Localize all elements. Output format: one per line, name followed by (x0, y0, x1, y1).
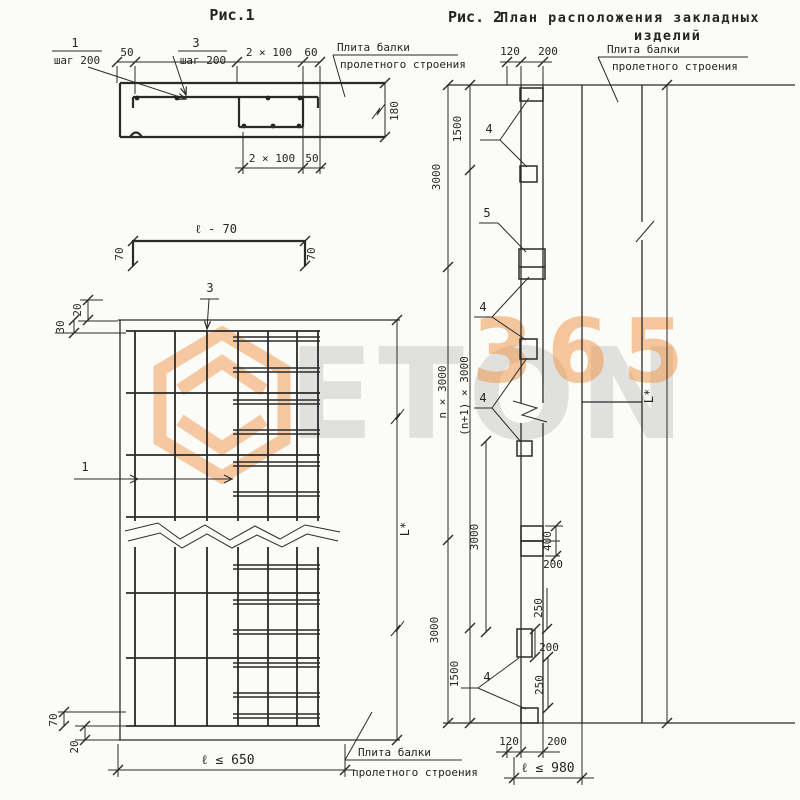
plan-dim-L: L* (398, 522, 412, 536)
fig2-dim-200-right: 200 (539, 641, 559, 654)
fig2-subtitle-1: План расположения закладных (500, 10, 760, 26)
pos3-step: шаг 200 (180, 54, 226, 67)
pos1-step: шаг 200 (54, 54, 100, 67)
plan-plate-label-1: Плита балки (358, 746, 431, 759)
fig2-dim-3000-bottom: 3000 (428, 617, 441, 644)
fig2-dim-250-a: 250 (532, 598, 545, 618)
channel-70-left: 70 (113, 247, 126, 260)
fig2-dim-1500-top: 1500 (451, 116, 464, 143)
break-line (125, 523, 340, 540)
fig2-dim-1500-bottom: 1500 (448, 661, 461, 688)
dim-2x100-top: 2 × 100 (246, 46, 292, 59)
fig2-plan: Рис. 2 План расположения закладных издел… (428, 8, 795, 785)
fig2-dim-L: L* (642, 389, 656, 403)
fig2-dim-n1-3000: (n+1) × 3000 (458, 356, 471, 435)
fig2-dim-400: 400 (541, 531, 554, 551)
plan-dim-20-bottom: 20 (68, 740, 81, 753)
channel-70-right: 70 (305, 247, 318, 260)
fig1-channel-detail: ℓ - 70 70 70 (113, 222, 318, 271)
plan-dim-30: 30 (54, 320, 67, 333)
plan-length-dim: ℓ ≤ 650 (201, 753, 254, 768)
fig1-plan: 20 30 3 1 L* 70 20 ℓ ≤ 650 Плита балки п… (47, 281, 478, 779)
drawing-sheet: Рис.1 50 2 × 100 60 2 × 100 50 1 шаг 200… (0, 0, 800, 800)
dim-50-top: 50 (120, 46, 133, 59)
fig2-dim-250-b: 250 (533, 675, 546, 695)
fig2-dim-120-top: 120 (500, 45, 520, 58)
fig2-plate-label-1: Плита балки (607, 43, 680, 56)
break-line (128, 533, 338, 548)
fig2-pos4-d: 4 (483, 670, 490, 684)
fig2-dim-120-bottom: 120 (499, 735, 519, 748)
fig2-pos4-a: 4 (485, 122, 492, 136)
fig2-pos4-b: 4 (479, 300, 486, 314)
fig1-title: Рис.1 (209, 6, 254, 24)
section-plate-label-2: пролетного строения (340, 58, 466, 71)
pos3-label: 3 (192, 36, 199, 50)
fig2-dim-n3000: n × 3000 (436, 366, 449, 419)
plan-pos3-label: 3 (206, 281, 213, 295)
fig2-pos4-c: 4 (479, 391, 486, 405)
channel-length-dim: ℓ - 70 (195, 222, 237, 236)
dim-180: 180 (388, 101, 401, 121)
fig2-plate-label-2: пролетного строения (612, 60, 738, 73)
fig2-dim-3000-top: 3000 (430, 164, 443, 191)
plan-pos1-label: 1 (81, 460, 88, 474)
plan-dim-70: 70 (47, 713, 60, 726)
pos1-label: 1 (71, 36, 78, 50)
dim-60: 60 (304, 46, 317, 59)
fig2-length-dim: ℓ ≤ 980 (521, 761, 574, 776)
section-plate-label-1: Плита балки (337, 41, 410, 54)
fig2-dim-200-top: 200 (538, 45, 558, 58)
fig2-subtitle-2: изделий (634, 28, 701, 44)
fig2-dim-200-mid: 200 (543, 558, 563, 571)
plan-plate-label-2: пролетного строения (352, 766, 478, 779)
dim-50-bottom: 50 (305, 152, 318, 165)
fig1-section: Рис.1 50 2 × 100 60 2 × 100 50 1 шаг 200… (52, 6, 466, 174)
dim-2x100-bottom: 2 × 100 (249, 152, 295, 165)
plan-dim-20-top: 20 (71, 303, 84, 316)
fig2-title: Рис. 2 (448, 8, 502, 26)
fig2-dim-200-bottom: 200 (547, 735, 567, 748)
fig2-dim-3000-mid: 3000 (468, 524, 481, 551)
mesh-dense-bars (233, 337, 320, 718)
fig2-pos5: 5 (483, 206, 490, 220)
